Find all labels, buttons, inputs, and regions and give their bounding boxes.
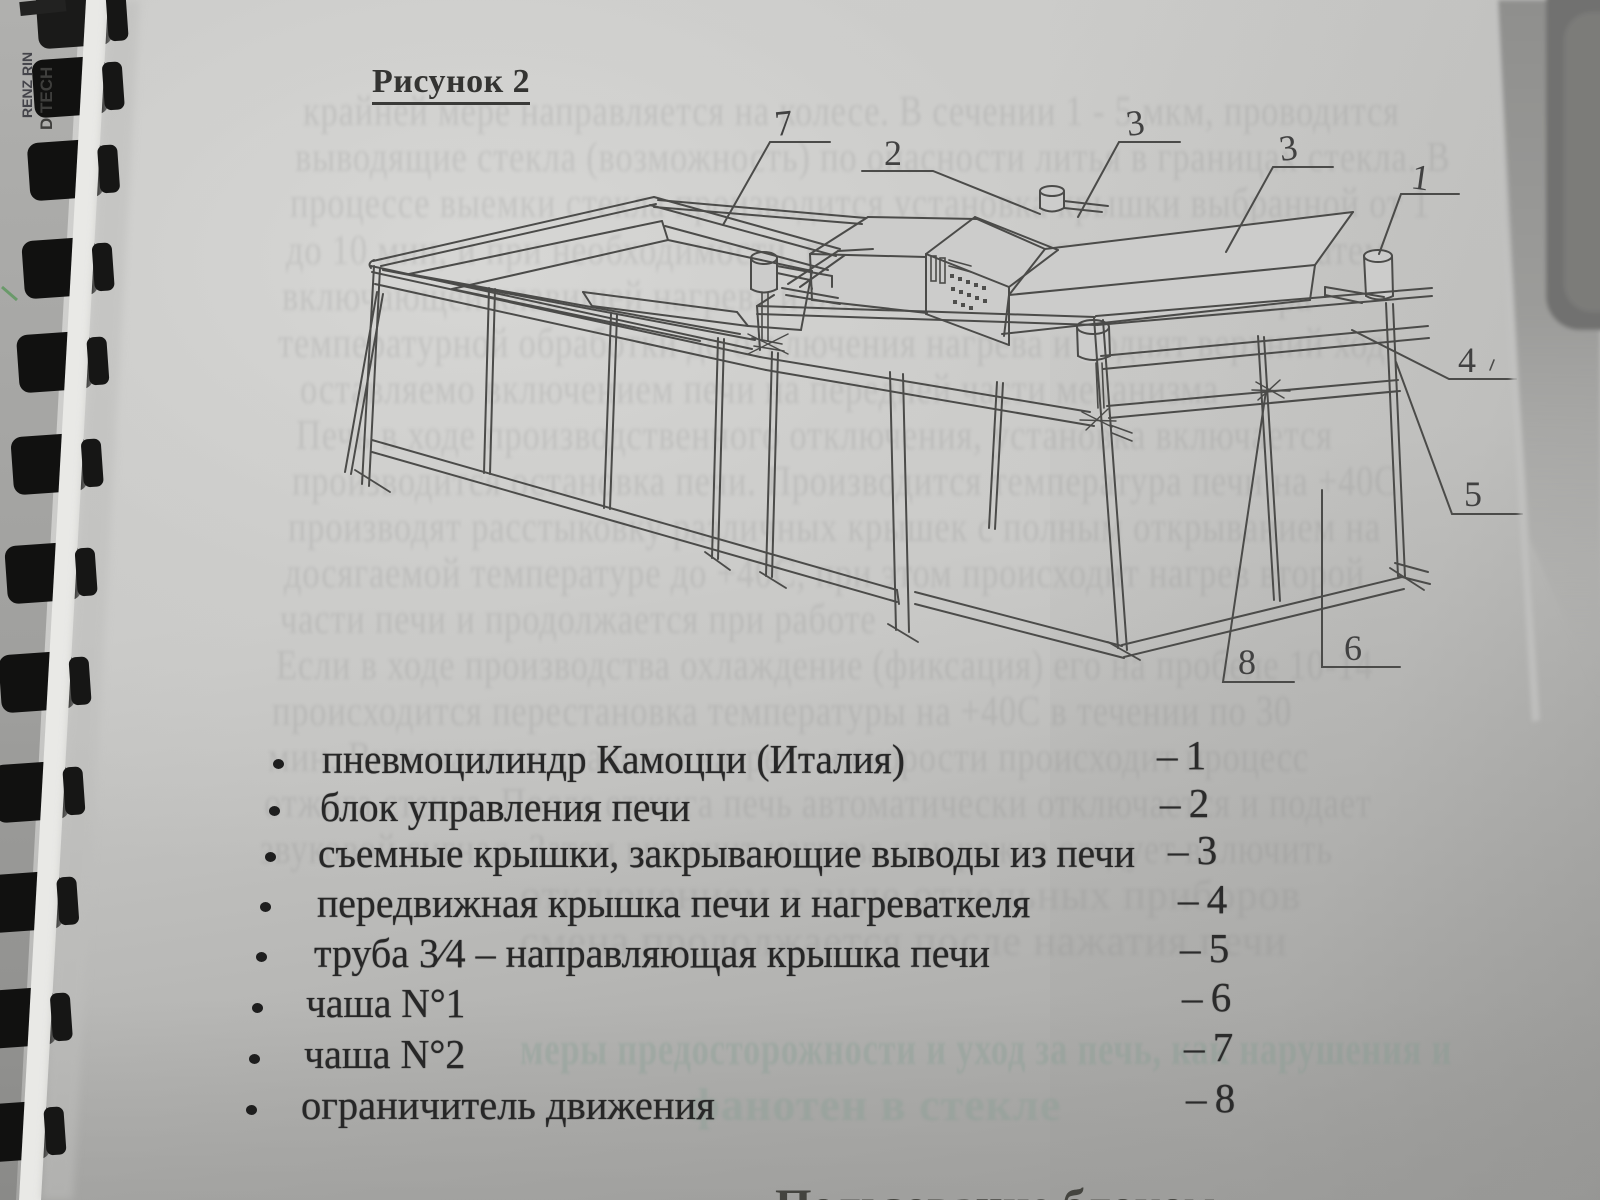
svg-text:3: 3 [1277, 127, 1300, 169]
svg-text:3: 3 [1124, 102, 1147, 144]
svg-text:7: 7 [773, 102, 795, 144]
svg-text:8: 8 [1238, 642, 1256, 682]
svg-text:D TECH: D TECH [37, 67, 56, 130]
svg-text:2: 2 [884, 133, 902, 173]
svg-text:6: 6 [1344, 628, 1362, 668]
svg-text:1: 1 [1409, 156, 1432, 198]
svg-text:RENZ RIN: RENZ RIN [19, 52, 35, 118]
